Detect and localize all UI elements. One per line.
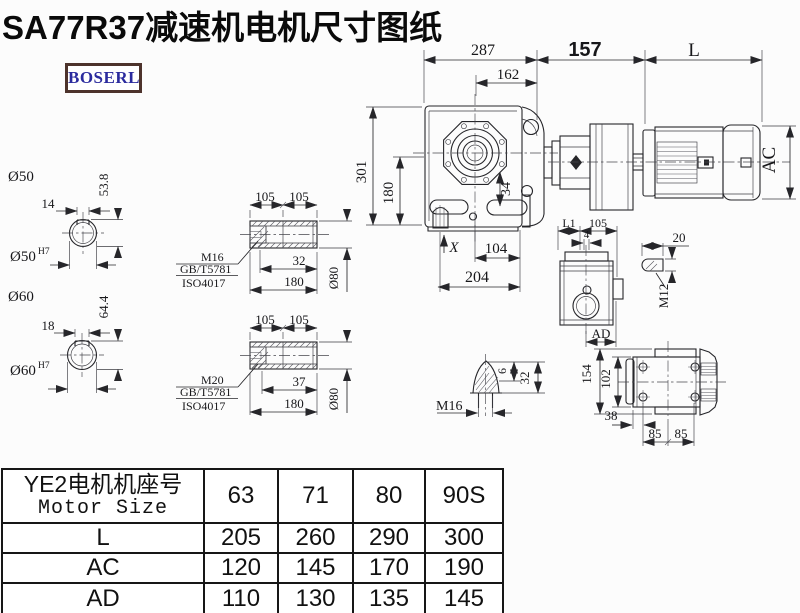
dim-180-lower: 180 [284, 396, 304, 411]
table-row: AD 110 130 135 145 [2, 583, 503, 613]
label-tol-d60: H7 [38, 361, 50, 371]
breather-plug-detail: M16 6 32 [436, 354, 545, 417]
base-slot-left [430, 200, 468, 214]
drawing-sheet: SA77R37减速机电机尺寸图纸 BOSERL [0, 0, 800, 613]
motor-size-table: YE2电机机座号 Motor Size 63 71 80 90S L 205 2… [1, 468, 504, 613]
header-cn: YE2电机机座号 [3, 471, 203, 497]
dim-38: 38 [605, 408, 618, 423]
dim-105-ad: 105 [589, 216, 607, 230]
dim-32-plug: 32 [517, 372, 532, 385]
dim-157: 157 [568, 39, 601, 61]
dim-154: 154 [579, 364, 594, 384]
key-detail: 20 M12 [642, 230, 689, 308]
table-cell: 300 [425, 523, 503, 553]
std-gb-upper: GB/T5781 [180, 262, 231, 276]
table-header-row: YE2电机机座号 Motor Size 63 71 80 90S [2, 469, 503, 523]
table-row: L 205 260 290 300 [2, 523, 503, 553]
dim-L1: L1 [562, 216, 575, 230]
dim-key-height-60: 64.4 [96, 295, 111, 318]
dim-162: 162 [497, 67, 520, 83]
table-row-label: AD [2, 583, 204, 613]
ad-side-view: L1 105 4 AD [558, 216, 623, 347]
table-cell: 170 [353, 553, 425, 583]
hollow-shaft-upper: 105 105 32 180 Ø80 M16 GB/T5781 ISO4017 [176, 189, 352, 294]
std-gb-lower: GB/T5781 [180, 385, 231, 399]
dim-301: 301 [354, 161, 370, 184]
table-cell: 145 [278, 553, 353, 583]
table-col-header: 80 [353, 469, 425, 523]
table-row-label: L [2, 523, 204, 553]
label-bore-d60: Ø60 [10, 363, 36, 379]
motor-assembly [548, 124, 790, 210]
dim-AC: AC [759, 147, 780, 173]
oil-plug [433, 205, 448, 228]
dim-204: 204 [465, 269, 489, 286]
hollow-shaft-lower: 105 105 37 180 Ø80 M20 GB/T5781 ISO4017 [176, 312, 352, 415]
dim-287: 287 [471, 42, 495, 59]
table-cell: 205 [204, 523, 278, 553]
dim-85b: 85 [675, 426, 688, 441]
dim-85a: 85 [649, 426, 662, 441]
dim-180-upper: 180 [284, 274, 304, 289]
table-col-header: 71 [278, 469, 353, 523]
table-cell: 290 [353, 523, 425, 553]
cooling-fins [657, 147, 697, 179]
dim-102: 102 [598, 369, 613, 389]
table-cell: 130 [278, 583, 353, 613]
motor-flange [590, 124, 633, 210]
table-cell: 110 [204, 583, 278, 613]
dim-104: 104 [485, 241, 508, 257]
dim-dia-upper: Ø80 [326, 267, 341, 289]
dim-L: L [688, 40, 700, 61]
label-tol-d50: H7 [38, 247, 50, 257]
bottom-view: 154 102 38 85 85 [579, 341, 726, 446]
dim-105b-upper: 105 [289, 189, 309, 204]
technical-drawing: 287 162 157 L 301 180 X 104 204 34 AC Ø5… [0, 0, 800, 468]
table-row-label: AC [2, 553, 204, 583]
std-iso-upper: ISO4017 [182, 276, 225, 290]
gearbox-front-view [413, 94, 558, 244]
dim-105a-upper: 105 [255, 189, 275, 204]
dim-dia-lower: Ø80 [326, 388, 341, 410]
dim-105a-lower: 105 [255, 312, 275, 327]
table-col-header: 63 [204, 469, 278, 523]
thread-M12: M12 [656, 284, 671, 309]
dim-AD: AD [592, 326, 611, 341]
dim-key-width-60: 18 [42, 318, 55, 333]
adapter-diamond-mark [570, 155, 582, 170]
table-header-motor-size: YE2电机机座号 Motor Size [2, 469, 204, 523]
table-col-header: 90S [425, 469, 503, 523]
label-d50: Ø50 [8, 169, 34, 185]
dim-32-upper: 32 [293, 253, 306, 268]
dim-37-lower: 37 [293, 374, 307, 389]
dim-34: 34 [499, 182, 514, 196]
label-d60: Ø60 [8, 289, 34, 305]
header-en: Motor Size [3, 497, 203, 521]
dim-X: X [448, 240, 459, 256]
std-iso-lower: ISO4017 [182, 399, 225, 413]
label-bore-d50: Ø50 [10, 249, 36, 265]
table-cell: 120 [204, 553, 278, 583]
base-slot-right [487, 200, 527, 215]
dim-20: 20 [673, 230, 686, 245]
table-row: AC 120 145 170 190 [2, 553, 503, 583]
dim-6: 6 [495, 368, 509, 374]
table-cell: 260 [278, 523, 353, 553]
dim-4: 4 [584, 229, 590, 241]
dim-180: 180 [381, 182, 397, 205]
dim-key-width-50: 14 [42, 196, 56, 211]
dim-105b-lower: 105 [289, 312, 309, 327]
thread-M16-plug: M16 [436, 399, 462, 414]
table-cell: 190 [425, 553, 503, 583]
shaft-section-d60: Ø60 18 64.4 Ø60 H7 [8, 289, 123, 393]
dim-key-height-50: 53.8 [96, 174, 111, 197]
table-cell: 145 [425, 583, 503, 613]
shaft-section-d50: Ø50 14 53.8 Ø50 H7 [8, 169, 123, 269]
table-cell: 135 [353, 583, 425, 613]
